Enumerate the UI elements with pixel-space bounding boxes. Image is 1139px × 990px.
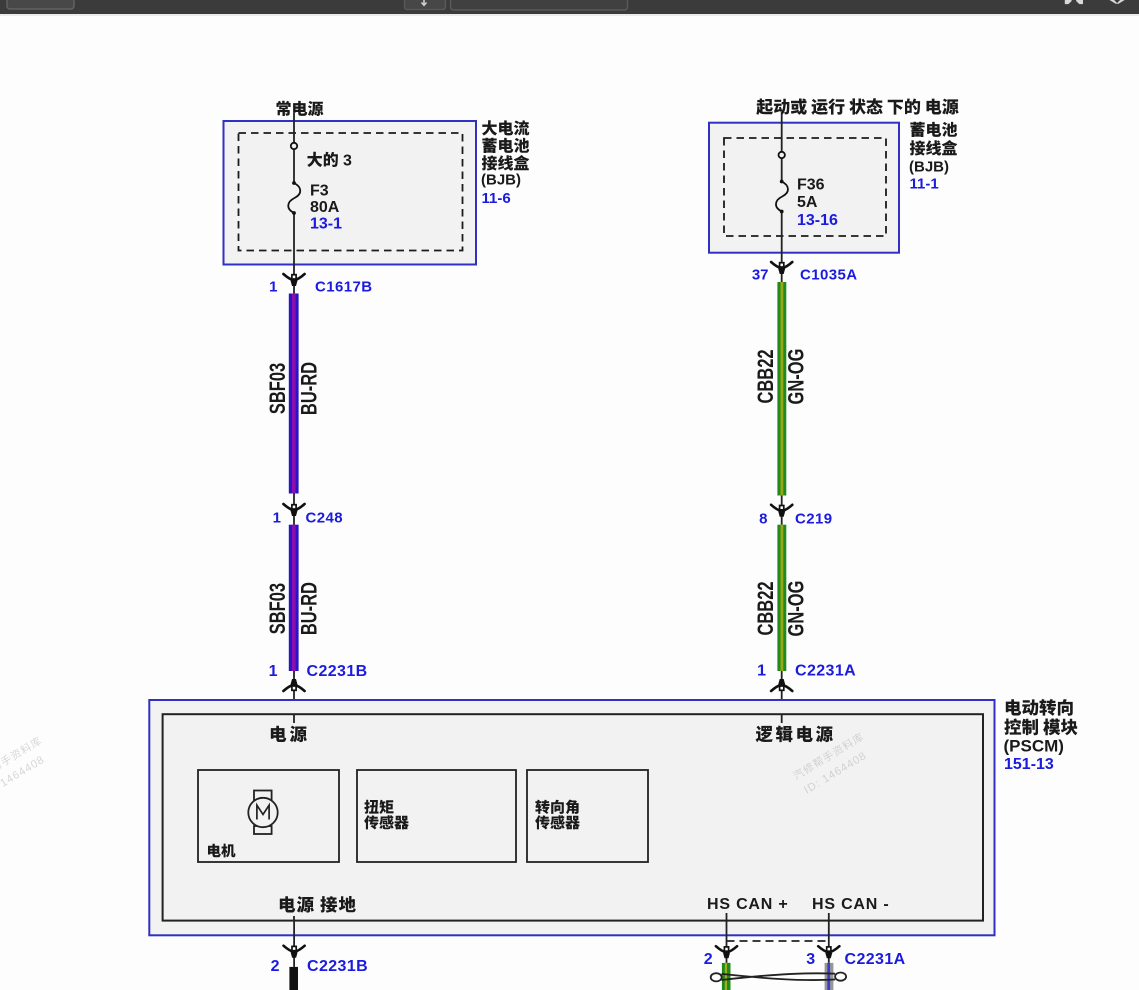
svg-text:C1617B: C1617B [315,279,372,296]
svg-text:151-13: 151-13 [1004,756,1054,773]
svg-text:GN-OG: GN-OG [784,581,809,637]
svg-text:GN-OG: GN-OG [784,349,809,405]
svg-text:C2231B: C2231B [307,663,368,680]
svg-text:2: 2 [271,958,280,975]
svg-text:SBF03: SBF03 [266,583,291,634]
svg-text:3: 3 [806,951,815,968]
svg-text:13-1: 13-1 [310,216,342,233]
svg-text:1: 1 [269,663,278,680]
svg-text:SBF03: SBF03 [266,363,291,414]
svg-text:1: 1 [273,510,281,527]
svg-text:11-6: 11-6 [482,190,511,207]
svg-text:(BJB): (BJB) [481,172,521,189]
svg-text:1: 1 [269,279,277,296]
svg-text:HS CAN -: HS CAN - [812,896,890,913]
svg-text:C2231A: C2231A [845,951,906,968]
svg-text:BU-RD: BU-RD [297,582,322,635]
svg-text:13-16: 13-16 [797,212,838,229]
svg-text:C248: C248 [306,510,343,527]
svg-text:C2231B: C2231B [307,958,368,975]
svg-text:37: 37 [752,266,769,283]
svg-text:C2231A: C2231A [795,663,856,680]
svg-text:C1035A: C1035A [800,266,857,283]
svg-text:HS CAN +: HS CAN + [707,896,789,913]
svg-text:(PSCM): (PSCM) [1004,737,1064,756]
svg-text:11-1: 11-1 [910,176,939,193]
svg-text:CBB22: CBB22 [754,349,779,403]
svg-text:5A: 5A [797,194,818,211]
svg-text:80A: 80A [310,199,340,216]
svg-text:CBB22: CBB22 [754,581,779,635]
svg-text:1: 1 [757,663,766,680]
svg-text:(BJB): (BJB) [909,159,949,176]
svg-text:C219: C219 [795,511,832,528]
svg-text:3: 3 [343,153,352,170]
svg-text:F3: F3 [310,183,329,200]
svg-text:2: 2 [704,951,713,968]
svg-text:8: 8 [759,511,767,528]
svg-text:F36: F36 [797,177,825,194]
svg-text:BU-RD: BU-RD [297,362,322,415]
